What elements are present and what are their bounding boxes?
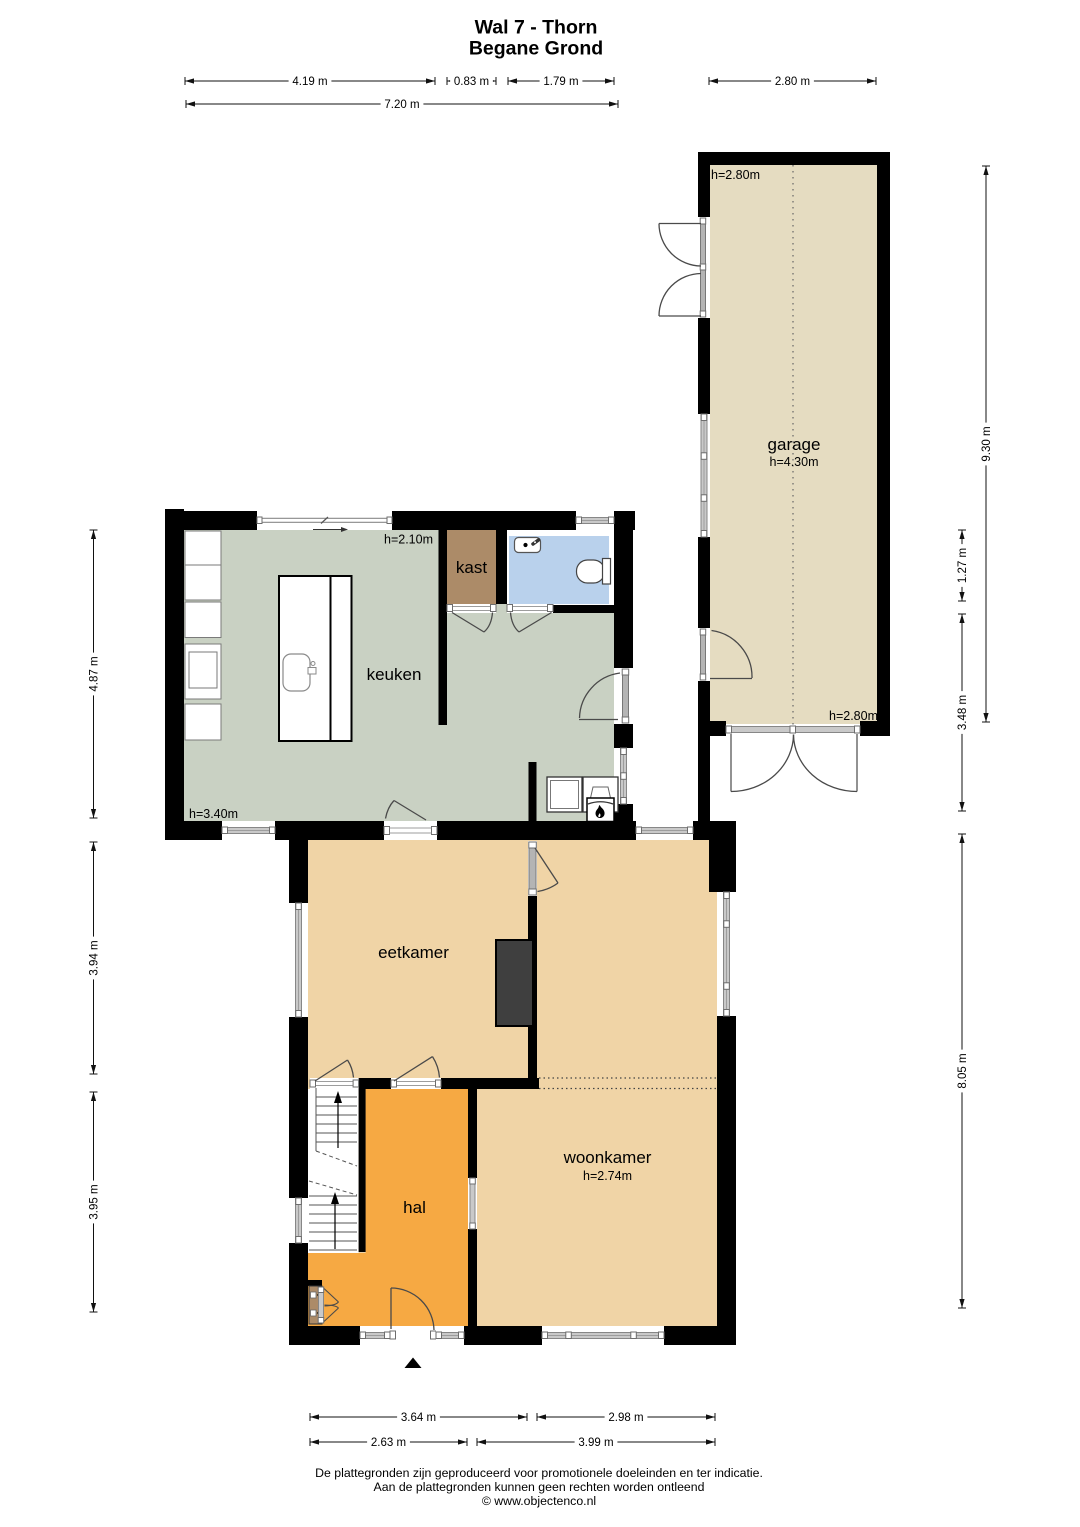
svg-text:1.79 m: 1.79 m bbox=[543, 76, 578, 88]
svg-text:2.63 m: 2.63 m bbox=[371, 1437, 406, 1449]
svg-text:2.80 m: 2.80 m bbox=[775, 76, 810, 88]
svg-text:De plattegronden zijn geproduc: De plattegronden zijn geproduceerd voor … bbox=[315, 1466, 763, 1480]
svg-text:2.98 m: 2.98 m bbox=[608, 1412, 643, 1424]
svg-text:1.27 m: 1.27 m bbox=[957, 548, 969, 583]
svg-text:0.83 m: 0.83 m bbox=[454, 76, 489, 88]
svg-text:3.99 m: 3.99 m bbox=[578, 1437, 613, 1449]
svg-text:Begane Grond: Begane Grond bbox=[469, 38, 603, 60]
svg-text:garage: garage bbox=[768, 435, 821, 454]
svg-text:Wal 7 - Thorn: Wal 7 - Thorn bbox=[475, 17, 598, 39]
svg-text:woonkamer: woonkamer bbox=[563, 1148, 652, 1167]
svg-text:h=2.80m: h=2.80m bbox=[711, 168, 760, 182]
svg-text:4.87 m: 4.87 m bbox=[89, 656, 101, 691]
svg-text:4.19 m: 4.19 m bbox=[292, 76, 327, 88]
svg-text:h=2.80m: h=2.80m bbox=[829, 709, 878, 723]
svg-text:h=2.10m: h=2.10m bbox=[384, 533, 433, 547]
svg-text:9.30 m: 9.30 m bbox=[981, 426, 993, 461]
svg-text:3.95 m: 3.95 m bbox=[89, 1184, 101, 1219]
svg-text:h=2.74m: h=2.74m bbox=[583, 1169, 632, 1183]
svg-text:kast: kast bbox=[456, 558, 487, 577]
svg-text:3.48 m: 3.48 m bbox=[957, 695, 969, 730]
svg-text:7.20 m: 7.20 m bbox=[384, 99, 419, 111]
svg-text:© www.objectenco.nl: © www.objectenco.nl bbox=[482, 1494, 596, 1508]
svg-text:h=4.30m: h=4.30m bbox=[770, 455, 819, 469]
svg-text:3.94 m: 3.94 m bbox=[89, 940, 101, 975]
svg-text:eetkamer: eetkamer bbox=[378, 943, 449, 962]
svg-text:hal: hal bbox=[403, 1198, 426, 1217]
svg-text:h=3.40m: h=3.40m bbox=[189, 807, 238, 821]
svg-text:3.64 m: 3.64 m bbox=[401, 1412, 436, 1424]
svg-text:Aan de plattegronden kunnen ge: Aan de plattegronden kunnen geen rechten… bbox=[374, 1480, 705, 1494]
svg-text:keuken: keuken bbox=[367, 665, 422, 684]
svg-text:8.05 m: 8.05 m bbox=[957, 1053, 969, 1088]
